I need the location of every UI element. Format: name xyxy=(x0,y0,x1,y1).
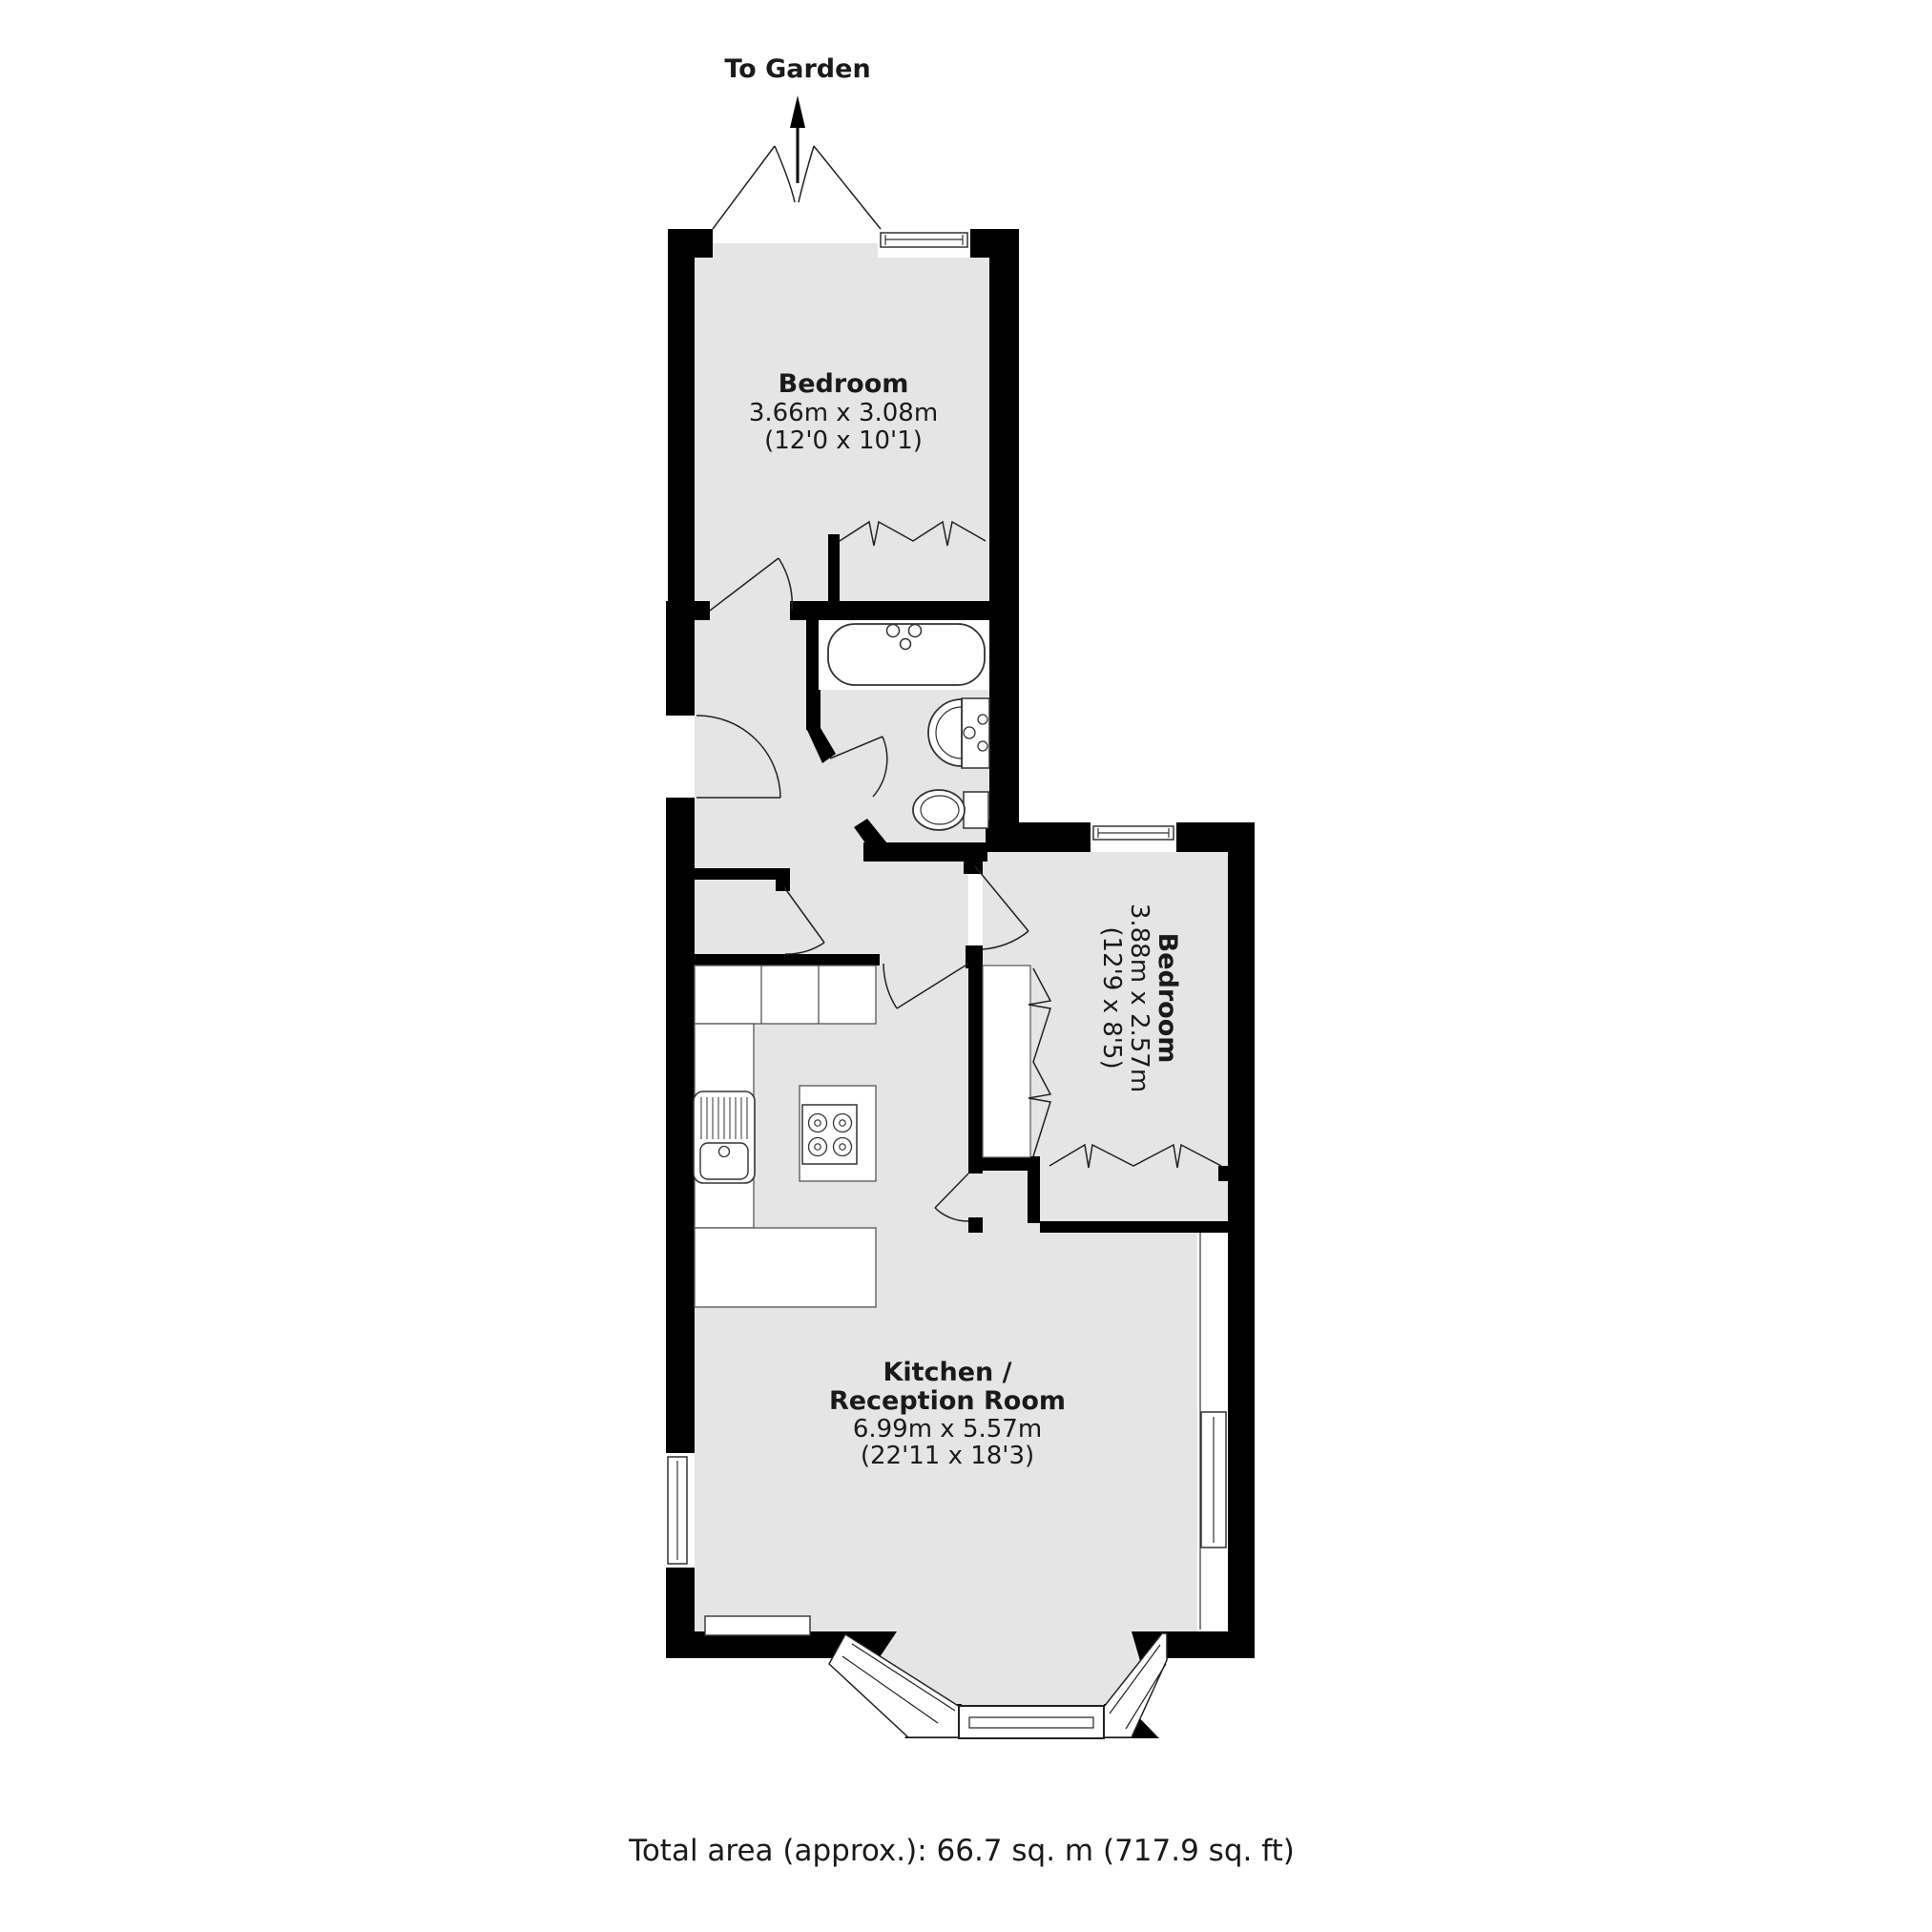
kitchen-counter-bottom xyxy=(695,1228,876,1307)
wall-b1-bath-right xyxy=(989,258,1019,823)
wall-b1-bottom-right xyxy=(790,601,992,620)
wall-b2-closet-stub-h xyxy=(978,1157,1028,1171)
wall-b1-top-left xyxy=(668,229,713,258)
bath-plug-icon xyxy=(901,639,911,650)
window-right-wall-icon xyxy=(1197,1233,1228,1630)
wall-b1-wardrobe-stub xyxy=(828,534,840,603)
wall-bottom-right xyxy=(1167,1631,1255,1658)
bedroom-1-size-metric: 3.66m x 3.08m xyxy=(749,399,938,427)
bedroom-2-closet-interior xyxy=(983,966,1030,1157)
wall-b2-closet-stub-v xyxy=(1028,1156,1040,1223)
wall-b2-left-bottom xyxy=(968,1217,983,1233)
wall-b1-top-right xyxy=(967,229,1019,258)
bath-tap-icon xyxy=(887,625,900,637)
bathtub-icon xyxy=(828,624,985,685)
kitchen-name-line1: Kitchen / xyxy=(883,1358,1011,1387)
bedroom-2-size-imperial: (12'9 x 8'5) xyxy=(1097,926,1126,1069)
garden-label: To Garden xyxy=(724,54,870,84)
hallway-floor xyxy=(695,606,806,966)
wall-b2-left xyxy=(968,945,983,1174)
wall-right xyxy=(1228,822,1255,1658)
window-bedroom1-top-icon xyxy=(878,229,970,258)
kitchen-counter-top xyxy=(695,966,876,1024)
wall-bath-left xyxy=(806,618,821,730)
garden-arrow-icon xyxy=(790,95,805,183)
window-left-wall-icon xyxy=(666,1453,695,1568)
window-bedroom2-top-icon xyxy=(1091,822,1176,852)
floor-plan-page: To Garden Bedroom 3.66m x 3.08m (12'0 x … xyxy=(0,0,1932,1932)
wall-b1-left xyxy=(668,258,695,618)
total-area-label: Total area (approx.): 66.7 sq. m (717.9 … xyxy=(628,1834,1295,1868)
wall-hall-left-upper xyxy=(666,601,695,716)
kitchen-island xyxy=(800,1086,876,1181)
bedroom-2-name: Bedroom xyxy=(1153,933,1182,1064)
toilet-cistern xyxy=(964,792,988,828)
wall-b2-wardrobe-stub xyxy=(1218,1166,1228,1181)
bedroom-2-size-metric: 3.88m x 2.57m xyxy=(1125,904,1153,1092)
radiator xyxy=(705,1616,810,1635)
kitchen-size-imperial: (22'11 x 18'3) xyxy=(861,1442,1034,1470)
floor-plan-svg: To Garden Bedroom 3.66m x 3.08m (12'0 x … xyxy=(0,0,1932,1932)
hob-icon xyxy=(802,1105,857,1164)
kitchen-sink-icon xyxy=(694,1091,755,1183)
wall-hall-stub xyxy=(692,868,779,880)
wall-kitchen-top xyxy=(692,954,880,966)
bedroom-1-size-imperial: (12'0 x 10'1) xyxy=(764,426,923,455)
kitchen-name-line2: Reception Room xyxy=(829,1386,1066,1416)
wall-b2-top-left xyxy=(986,822,1091,852)
hallway-passage-floor xyxy=(806,862,968,966)
wall-b2-bottom xyxy=(1040,1221,1231,1233)
bath-tap-icon xyxy=(909,625,922,637)
kitchen-size-metric: 6.99m x 5.57m xyxy=(853,1415,1042,1444)
wall-left-mid xyxy=(666,798,695,1453)
bedroom-1-name: Bedroom xyxy=(779,369,909,399)
wall-hall-stub-nub xyxy=(776,868,790,891)
